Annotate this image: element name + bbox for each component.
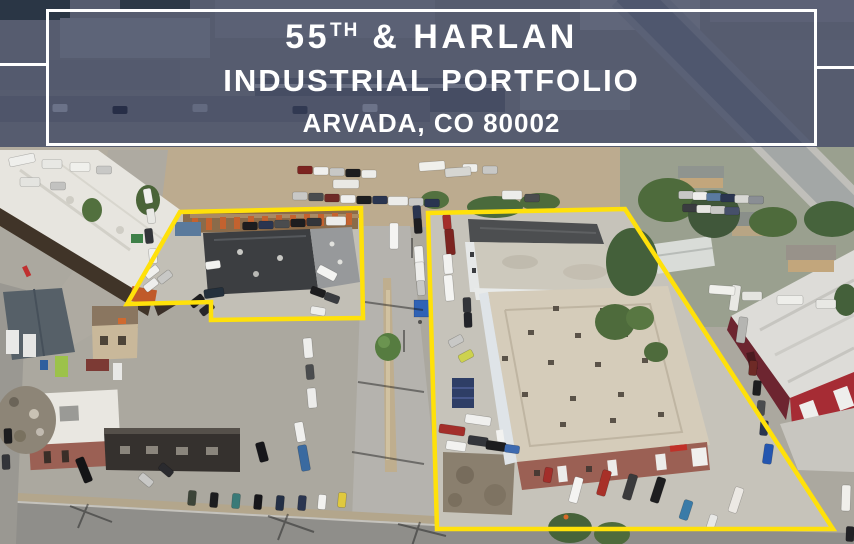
title-superscript: TH [330,20,359,41]
title-line-3: ARVADA, CO 80002 [49,103,814,143]
title-number: 55 [285,18,330,56]
title-line-1: 55TH & HARLAN [49,15,814,59]
title-banner: 55TH & HARLAN INDUSTRIAL PORTFOLIO ARVAD… [46,9,817,146]
title-street: & HARLAN [359,18,577,56]
banner-right-rule [817,66,854,69]
banner-left-rule [0,63,47,66]
flyer-image: 55TH & HARLAN INDUSTRIAL PORTFOLIO ARVAD… [0,0,854,544]
title-line-2: INDUSTRIAL PORTFOLIO [49,59,814,103]
